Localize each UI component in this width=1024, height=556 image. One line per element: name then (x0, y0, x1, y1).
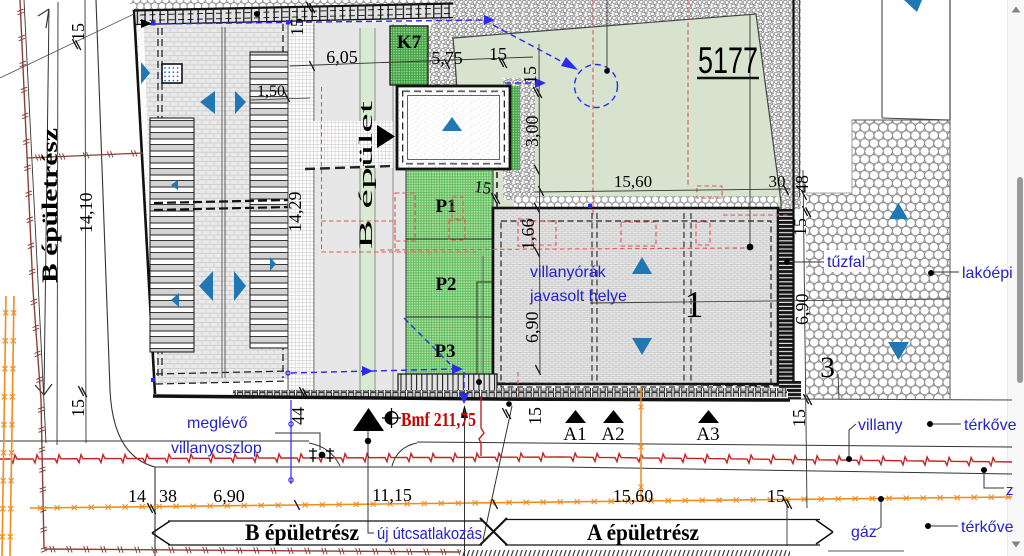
svg-text:14,10: 14,10 (76, 193, 96, 234)
svg-text:K7: K7 (397, 32, 422, 53)
svg-text:térkőve: térkőve (961, 519, 1014, 536)
svg-text:B épület: B épület (356, 99, 377, 249)
svg-text:B épületrész: B épületrész (245, 520, 359, 545)
svg-text:38: 38 (159, 486, 177, 506)
svg-text:44: 44 (288, 407, 308, 425)
svg-text:14,29: 14,29 (285, 192, 305, 233)
svg-text:meglévő: meglévő (187, 415, 248, 432)
svg-text:P2: P2 (435, 274, 456, 295)
svg-text:15: 15 (287, 18, 307, 36)
svg-text:3: 3 (820, 351, 835, 384)
svg-text:6,90: 6,90 (792, 294, 812, 326)
svg-text:48: 48 (792, 175, 812, 193)
svg-text:A2: A2 (601, 424, 624, 445)
svg-text:15,60: 15,60 (613, 486, 654, 506)
svg-text:15: 15 (520, 66, 540, 84)
svg-text:14: 14 (128, 486, 146, 506)
svg-text:15: 15 (767, 486, 785, 506)
svg-text:15: 15 (473, 177, 492, 198)
svg-text:P1: P1 (435, 196, 456, 217)
svg-text:térkőve: térkőve (964, 417, 1017, 434)
svg-text:villany: villany (858, 417, 902, 434)
svg-text:15: 15 (68, 23, 88, 41)
svg-text:30: 30 (769, 172, 786, 191)
svg-text:3,00: 3,00 (522, 116, 542, 148)
svg-text:villanyórák: villanyórák (530, 264, 607, 281)
svg-text:javasolt helye: javasolt helye (529, 288, 627, 305)
svg-text:5177: 5177 (698, 40, 758, 81)
svg-text:1: 1 (685, 284, 704, 326)
svg-text:P3: P3 (434, 341, 455, 362)
svg-text:Bmf 211,75: Bmf 211,75 (401, 409, 476, 431)
svg-text:1,50: 1,50 (257, 83, 285, 100)
svg-text:15: 15 (68, 399, 88, 417)
svg-text:5,75: 5,75 (431, 48, 463, 68)
svg-text:tűzfal: tűzfal (827, 254, 865, 271)
svg-text:6,90: 6,90 (522, 312, 542, 344)
svg-text:6,05: 6,05 (326, 47, 358, 67)
svg-text:villanyoszlop: villanyoszlop (171, 440, 262, 457)
svg-text:15,60: 15,60 (614, 172, 652, 191)
svg-text:6,90: 6,90 (213, 486, 245, 506)
svg-text:A épületrész: A épületrész (587, 520, 699, 545)
svg-text:A3: A3 (696, 424, 719, 445)
svg-text:1,66: 1,66 (518, 219, 538, 251)
svg-text:15: 15 (489, 44, 507, 64)
svg-text:z: z (1006, 482, 1014, 499)
svg-text:15: 15 (789, 409, 809, 427)
svg-text:A1: A1 (563, 424, 586, 445)
svg-text:15: 15 (525, 407, 545, 425)
svg-text:lakóépi: lakóépi (962, 265, 1013, 282)
svg-text:gáz: gáz (851, 524, 877, 541)
svg-text:11,15: 11,15 (372, 485, 412, 505)
svg-text:B épületrész: B épületrész (37, 128, 62, 283)
svg-text:15: 15 (790, 218, 810, 236)
svg-text:új útcsatlakozás: új útcsatlakozás (377, 524, 482, 543)
